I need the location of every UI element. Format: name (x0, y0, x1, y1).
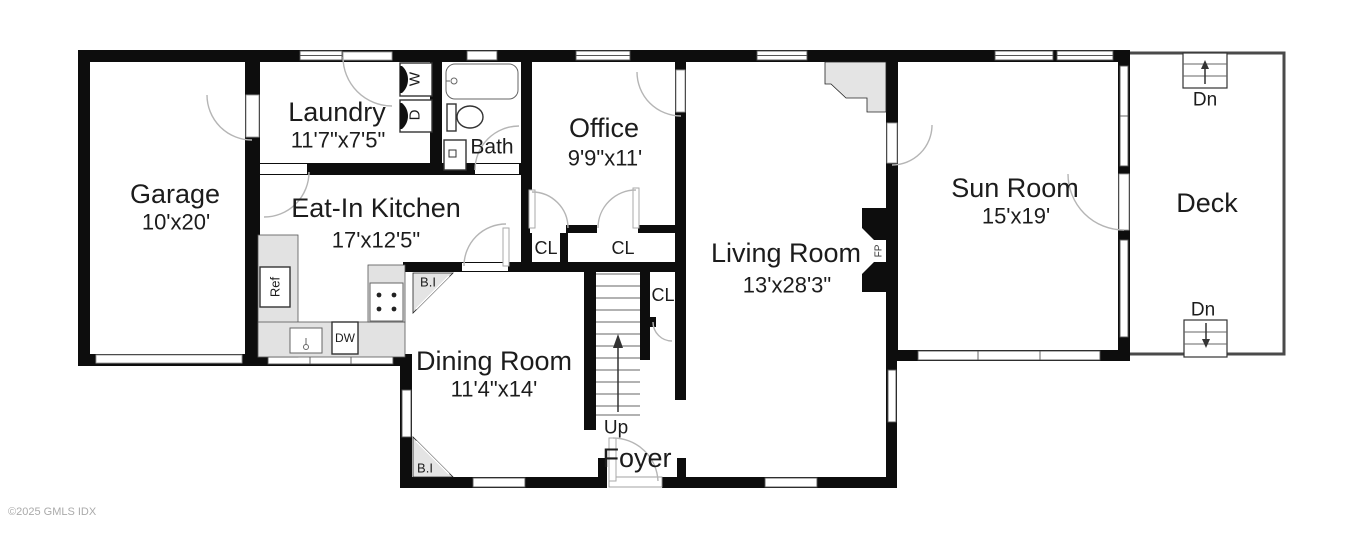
room-dims-kitchen: 17'x12'5" (332, 228, 420, 253)
floor-plan: Garage 10'x20' Laundry 11'7"x7'5" Bath O… (0, 0, 1372, 539)
cooktop (370, 283, 403, 321)
staircase (596, 274, 640, 415)
room-label-office: Office (569, 113, 639, 143)
room-dims-garage: 10'x20' (142, 210, 210, 235)
fireplace-label: FP (874, 244, 885, 257)
room-dims-living: 13'x28'3" (743, 273, 831, 298)
room-dims-dining: 11'4"x14' (451, 377, 538, 402)
bath-sink (444, 140, 466, 170)
room-label-bath: Bath (470, 136, 513, 159)
stairs-up-label: Up (604, 418, 628, 439)
closet-label-1: CL (534, 238, 557, 258)
closet-label-2: CL (611, 238, 634, 258)
washer-label: W (407, 71, 424, 86)
watermark: ©2025 GMLS IDX (8, 506, 97, 518)
room-label-sunroom: Sun Room (951, 173, 1079, 203)
dishwasher-label: DW (335, 331, 356, 345)
room-label-dining: Dining Room (416, 346, 572, 376)
chimney-nook (825, 62, 886, 112)
room-label-deck: Deck (1176, 188, 1238, 218)
dryer-label: D (407, 109, 424, 120)
room-label-garage: Garage (130, 179, 220, 209)
deck-stairs-bottom-label: Dn (1191, 300, 1215, 321)
built-in-label-bottom: B.I (417, 461, 433, 476)
room-label-living: Living Room (711, 238, 861, 268)
room-dims-laundry: 11'7"x7'5" (291, 128, 386, 153)
built-in-label-top: B.I (420, 275, 436, 290)
refrigerator-label: Ref (268, 276, 283, 297)
room-dims-sunroom: 15'x19' (982, 204, 1050, 229)
room-label-foyer: Foyer (602, 443, 671, 473)
room-dims-office: 9'9"x11' (568, 146, 643, 171)
floor-plan-canvas: Garage 10'x20' Laundry 11'7"x7'5" Bath O… (0, 0, 1372, 539)
toilet (457, 106, 483, 128)
toilet-tank (447, 104, 456, 131)
room-label-kitchen: Eat-In Kitchen (291, 193, 461, 223)
deck-stairs-top-label: Dn (1193, 90, 1217, 111)
deck-stairs-top (1183, 53, 1227, 88)
closet-label-3: CL (651, 285, 674, 305)
deck-stairs-bottom (1184, 320, 1227, 357)
room-label-laundry: Laundry (288, 97, 386, 127)
